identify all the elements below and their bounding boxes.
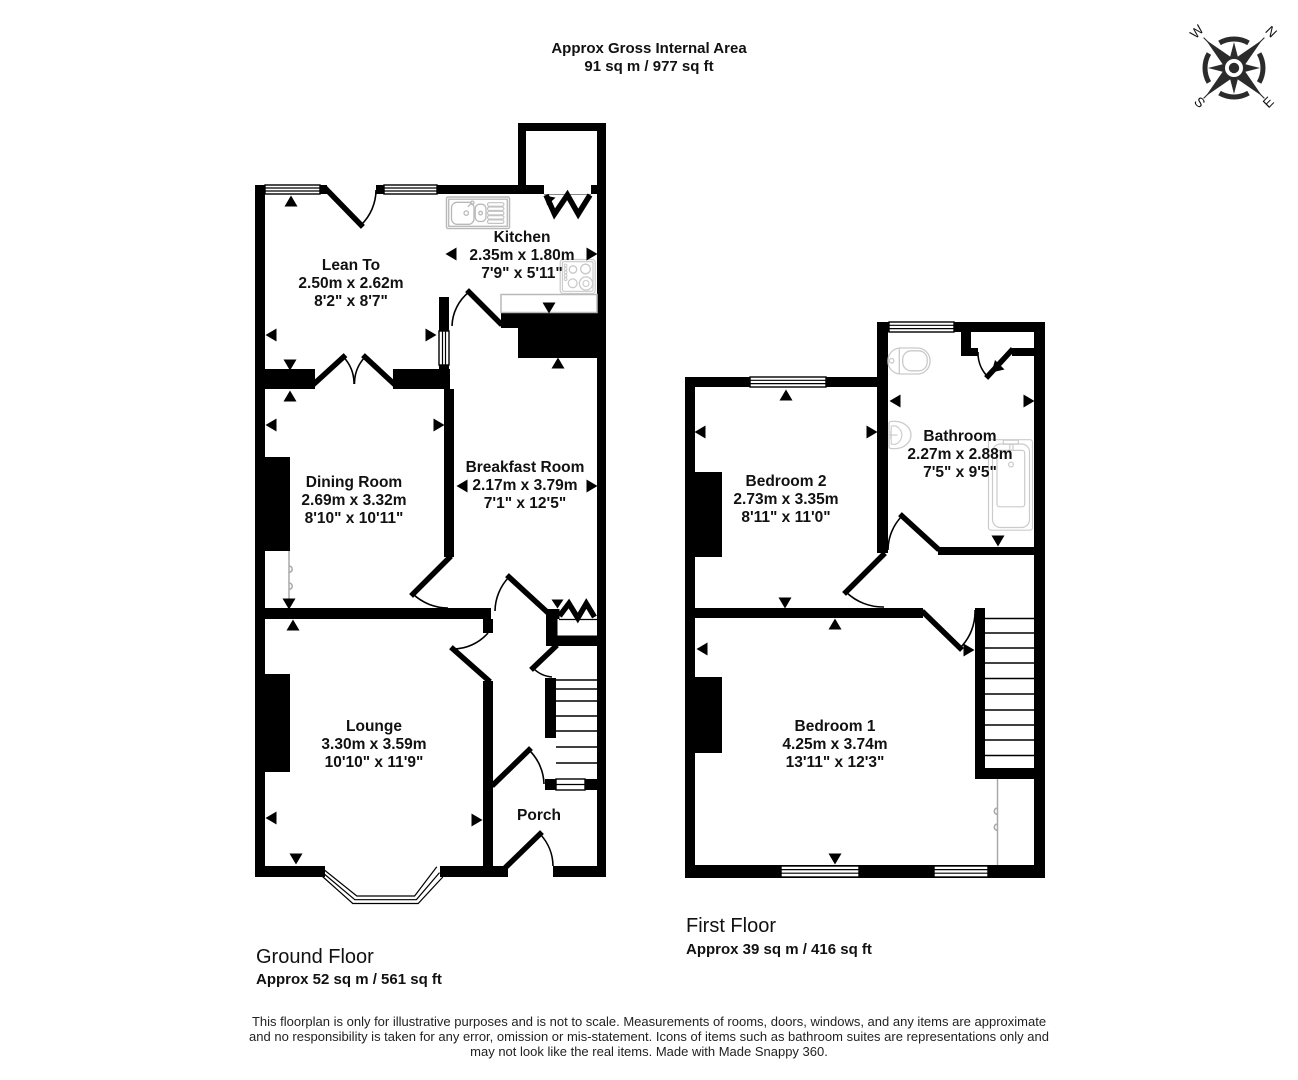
svg-text:Approx Gross Internal Area: Approx Gross Internal Area xyxy=(551,40,747,57)
svg-text:Kitchen: Kitchen xyxy=(494,229,551,246)
svg-text:This floorplan is only for ill: This floorplan is only for illustrative … xyxy=(252,1014,1046,1029)
svg-text:2.35m x 1.80m: 2.35m x 1.80m xyxy=(469,247,574,264)
svg-text:2.69m x 3.32m: 2.69m x 3.32m xyxy=(301,492,406,509)
svg-text:Breakfast Room: Breakfast Room xyxy=(466,459,585,476)
svg-text:Bedroom 1: Bedroom 1 xyxy=(795,718,876,735)
svg-text:2.73m x 3.35m: 2.73m x 3.35m xyxy=(733,491,838,508)
svg-text:7'5" x 9'5": 7'5" x 9'5" xyxy=(923,464,997,481)
svg-text:2.50m x 2.62m: 2.50m x 2.62m xyxy=(298,275,403,292)
svg-text:91 sq m / 977 sq ft: 91 sq m / 977 sq ft xyxy=(584,58,713,75)
svg-text:13'11" x 12'3": 13'11" x 12'3" xyxy=(786,754,885,771)
svg-text:Lounge: Lounge xyxy=(346,718,402,735)
svg-text:8'10" x 10'11": 8'10" x 10'11" xyxy=(305,510,404,527)
svg-text:7'1" x 12'5": 7'1" x 12'5" xyxy=(484,495,566,512)
svg-text:Dining Room: Dining Room xyxy=(306,474,402,491)
svg-text:Bedroom 2: Bedroom 2 xyxy=(746,473,827,490)
svg-text:First Floor: First Floor xyxy=(686,915,776,937)
svg-text:Bathroom: Bathroom xyxy=(923,428,996,445)
svg-text:4.25m x 3.74m: 4.25m x 3.74m xyxy=(782,736,887,753)
svg-text:7'9" x 5'11": 7'9" x 5'11" xyxy=(481,265,563,282)
svg-text:and no responsibility is taken: and no responsibility is taken for any e… xyxy=(249,1029,1049,1044)
svg-text:8'11" x 11'0": 8'11" x 11'0" xyxy=(741,509,830,526)
svg-text:3.30m x 3.59m: 3.30m x 3.59m xyxy=(321,736,426,753)
svg-text:Approx 39 sq m / 416 sq ft: Approx 39 sq m / 416 sq ft xyxy=(686,941,872,958)
svg-text:Lean To: Lean To xyxy=(322,257,380,274)
svg-text:may not look like the real ite: may not look like the real items. Made w… xyxy=(470,1044,828,1059)
svg-text:2.17m x 3.79m: 2.17m x 3.79m xyxy=(472,477,577,494)
svg-text:2.27m x 2.88m: 2.27m x 2.88m xyxy=(907,446,1012,463)
svg-text:8'2" x 8'7": 8'2" x 8'7" xyxy=(314,293,388,310)
svg-text:Approx 52 sq m / 561 sq ft: Approx 52 sq m / 561 sq ft xyxy=(256,971,442,988)
svg-text:Porch: Porch xyxy=(517,807,561,824)
svg-text:10'10" x 11'9": 10'10" x 11'9" xyxy=(325,754,424,771)
svg-text:Ground Floor: Ground Floor xyxy=(256,946,374,968)
